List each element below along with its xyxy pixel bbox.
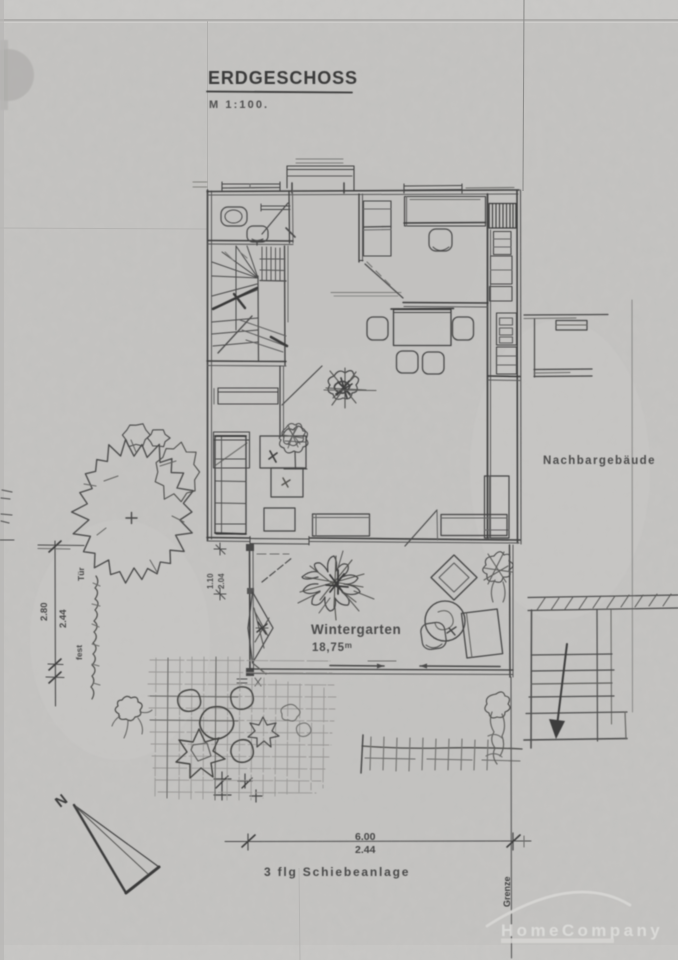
svg-text:fest: fest: [74, 645, 84, 660]
svg-text:2.44: 2.44: [58, 609, 69, 628]
svg-text:2.80: 2.80: [39, 603, 50, 622]
svg-text:Tür: Tür: [76, 567, 86, 581]
svg-text:3 flg Schiebeanlage: 3 flg Schiebeanlage: [264, 865, 410, 879]
svg-text:ERDGESCHOSS: ERDGESCHOSS: [208, 68, 358, 88]
svg-text:Grenze: Grenze: [502, 876, 512, 907]
svg-text:Nachbargebäude: Nachbargebäude: [543, 455, 656, 467]
svg-text:2.04: 2.04: [217, 573, 226, 589]
svg-text:1.10: 1.10: [206, 573, 215, 589]
svg-text:M 1:100.: M 1:100.: [209, 99, 269, 111]
svg-text:Wintergarten: Wintergarten: [311, 622, 401, 637]
svg-text:2.44: 2.44: [355, 844, 376, 856]
svg-text:HomeCompany: HomeCompany: [501, 921, 663, 940]
svg-text:6.00: 6.00: [355, 831, 376, 843]
